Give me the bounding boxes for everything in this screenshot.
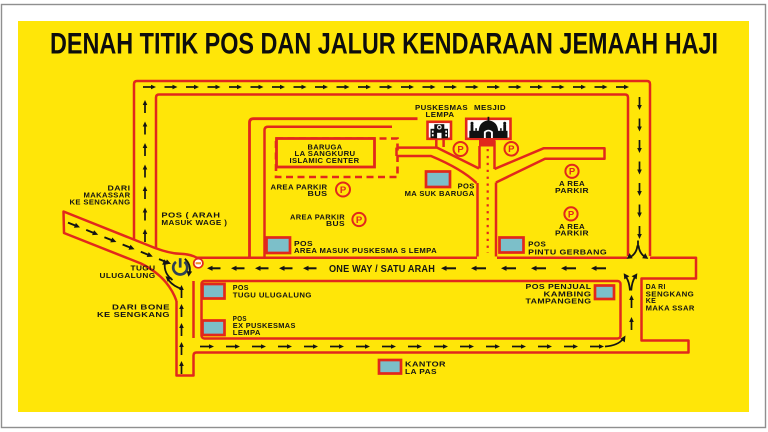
svg-text:DENAH TITIK POS DAN JALUR KEND: DENAH TITIK POS DAN JALUR KENDARAAN JEMA… [50, 28, 718, 61]
svg-text:TAMPANGENG: TAMPANGENG [526, 297, 592, 306]
svg-text:P: P [568, 209, 575, 220]
svg-text:P: P [569, 167, 576, 178]
svg-text:BUS: BUS [326, 219, 345, 228]
svg-text:PARKIR: PARKIR [555, 229, 590, 238]
svg-text:PINTU GERBANG: PINTU GERBANG [528, 247, 607, 256]
svg-text:MASUK WAGE ): MASUK WAGE ) [161, 218, 227, 227]
svg-text:P: P [457, 144, 464, 155]
svg-text:ONE WAY / SATU ARAH: ONE WAY / SATU ARAH [329, 263, 435, 275]
svg-text:ULUGALUNG: ULUGALUNG [100, 271, 156, 280]
svg-text:ISLAMIC CENTER: ISLAMIC CENTER [290, 158, 360, 165]
svg-text:P: P [340, 185, 347, 196]
svg-text:MAKA SSAR: MAKA SSAR [646, 304, 695, 313]
svg-text:LA PAS: LA PAS [405, 367, 437, 376]
svg-text:LEMPA: LEMPA [233, 328, 261, 337]
svg-text:LEMPA: LEMPA [426, 110, 455, 119]
svg-text:KE SENGKANG: KE SENGKANG [70, 198, 131, 207]
svg-text:P: P [508, 144, 515, 155]
svg-text:MA SUK BARUGA: MA SUK BARUGA [405, 189, 475, 198]
svg-text:PARKIR: PARKIR [555, 186, 590, 195]
svg-text:KE SENGKANG: KE SENGKANG [97, 310, 170, 319]
svg-text:P: P [356, 215, 363, 226]
svg-text:TUGU ULUGALUNG: TUGU ULUGALUNG [233, 291, 312, 300]
svg-text:MESJID: MESJID [474, 103, 506, 112]
svg-text:AREA MASUK PUSKESMA S LEMPA: AREA MASUK PUSKESMA S LEMPA [294, 246, 437, 255]
svg-text:BUS: BUS [308, 189, 328, 198]
